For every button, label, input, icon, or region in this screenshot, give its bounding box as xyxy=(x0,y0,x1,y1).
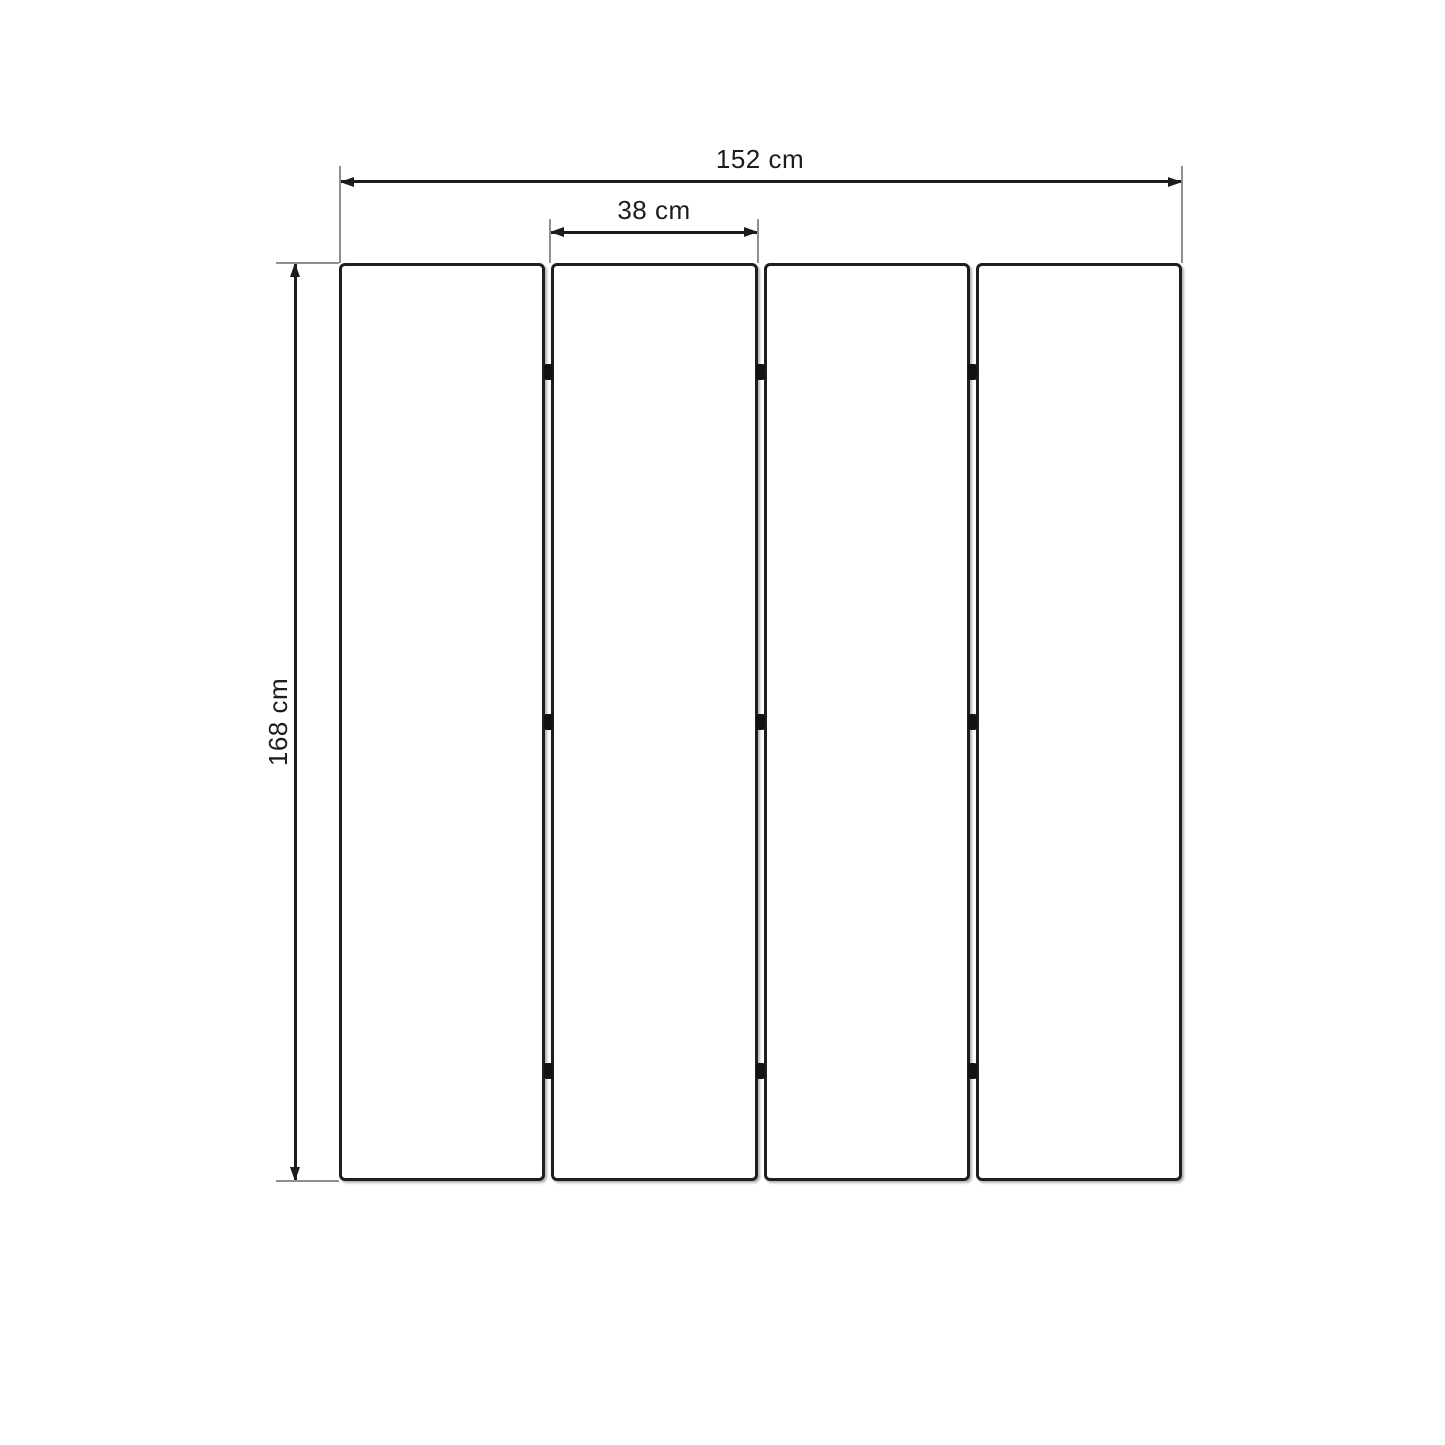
arrowhead-right-icon xyxy=(744,227,758,237)
hinge xyxy=(544,714,553,730)
extension-line-bottom xyxy=(276,1180,339,1182)
panel-1 xyxy=(339,263,545,1181)
extension-line-left-edge xyxy=(339,166,341,263)
panel-3 xyxy=(764,263,970,1181)
arrowhead-down-icon xyxy=(290,1167,300,1181)
total-width-dimension-label: 152 cm xyxy=(610,144,910,175)
extension-line-top xyxy=(276,262,339,264)
arrowhead-left-icon xyxy=(340,177,354,187)
arrowhead-up-icon xyxy=(290,263,300,277)
hinge xyxy=(544,1063,553,1079)
hinge xyxy=(544,364,553,380)
hinge xyxy=(756,714,765,730)
height-dimension-label: 168 cm xyxy=(263,622,295,822)
hinge xyxy=(968,364,977,380)
total-width-dimension-line xyxy=(340,180,1182,183)
hinge xyxy=(756,364,765,380)
height-dimension-line xyxy=(294,264,297,1180)
hinge xyxy=(968,714,977,730)
panel-4 xyxy=(976,263,1182,1181)
extension-line-panel-right xyxy=(757,219,759,263)
arrowhead-right-icon xyxy=(1168,177,1182,187)
arrowhead-left-icon xyxy=(550,227,564,237)
hinge xyxy=(968,1063,977,1079)
hinge xyxy=(756,1063,765,1079)
extension-line-right-edge xyxy=(1181,166,1183,263)
panel-2 xyxy=(551,263,757,1181)
panel-width-dimension-line xyxy=(550,231,758,234)
diagram-canvas: 152 cm 38 cm 168 cm xyxy=(0,0,1445,1445)
extension-line-panel-left xyxy=(549,219,551,263)
